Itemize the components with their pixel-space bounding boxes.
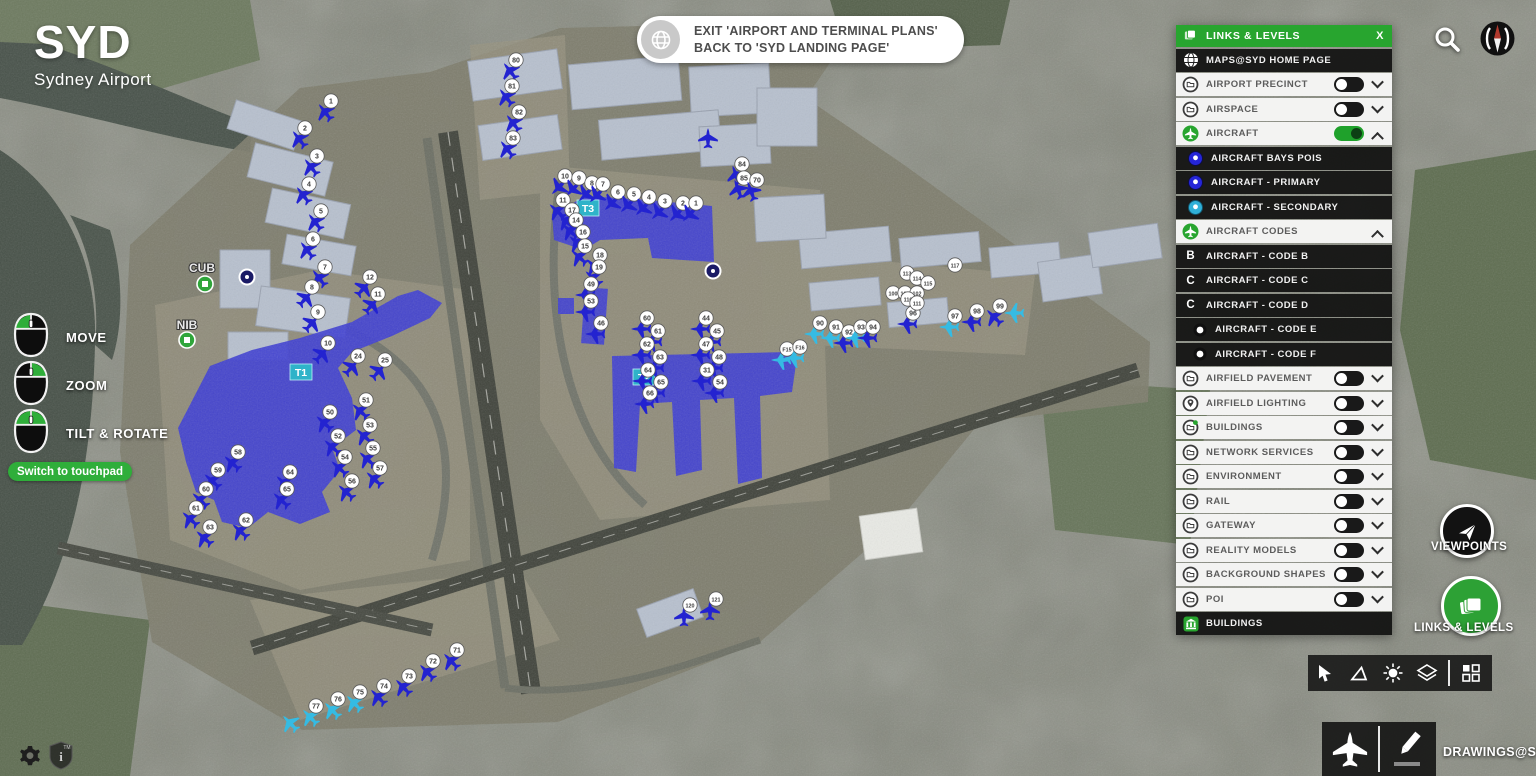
- bay-marker-number: 85: [740, 176, 748, 183]
- folder-icon: [1182, 370, 1199, 387]
- sun-icon[interactable]: [1376, 655, 1410, 691]
- svg-text:i: i: [59, 749, 63, 764]
- settings-gear-icon[interactable]: [16, 742, 44, 775]
- terminal-label-t1: T1: [290, 364, 312, 380]
- folder-icon: [1182, 566, 1199, 583]
- panel-row-label: AIRCRAFT - CODE B: [1206, 251, 1386, 262]
- poi-circle-nib: [179, 332, 195, 348]
- bay-marker-number: 3: [315, 154, 319, 161]
- bay-marker-number: 97: [951, 314, 959, 321]
- plane-green-icon: [1182, 125, 1199, 142]
- bay-marker-number: 15: [581, 244, 589, 251]
- chevron-down-icon[interactable]: [1371, 443, 1384, 456]
- pin-icon: [1182, 395, 1199, 412]
- bay-marker-number: 14: [572, 218, 580, 225]
- panel-row-label: NETWORK SERVICES: [1206, 447, 1327, 458]
- exit-line2: BACK TO 'SYD LANDING PAGE': [694, 40, 938, 57]
- panel-row-aircraft-primary[interactable]: AIRCRAFT - PRIMARY: [1176, 171, 1392, 194]
- dot-cyan-icon: [1187, 199, 1204, 216]
- bay-marker-number: 9: [577, 176, 581, 183]
- panel-row-label: AIRFIELD LIGHTING: [1206, 398, 1327, 409]
- layers-box-icon[interactable]: [1410, 655, 1444, 691]
- toggle-aircraft[interactable]: [1334, 126, 1364, 141]
- drawings-syd-label: DRAWINGS@SYD: [1443, 745, 1536, 759]
- toggle-gateway[interactable]: [1334, 518, 1364, 533]
- bay-marker-number: 75: [356, 690, 364, 697]
- plane-green-icon: [1182, 223, 1199, 240]
- chevron-down-icon[interactable]: [1371, 566, 1384, 579]
- chevron-down-icon[interactable]: [1371, 76, 1384, 89]
- bay-marker-number: 52: [334, 434, 342, 441]
- toggle-network-services[interactable]: [1334, 445, 1364, 460]
- globe-icon: [641, 20, 680, 59]
- bay-marker-number: 80: [512, 58, 520, 65]
- app-stage: CUB NIB T1 T2 T3 12345678910121124255051…: [0, 0, 1536, 776]
- links-levels-panel: LINKS & LEVELS X MAPS@SYD HOME PAGEAIRPO…: [1176, 25, 1392, 635]
- tilt-rotate-label: TILT & ROTATE: [66, 426, 168, 441]
- bay-marker-number: 53: [366, 423, 374, 430]
- toggle-airfield-lighting[interactable]: [1334, 396, 1364, 411]
- toggle-environment[interactable]: [1334, 469, 1364, 484]
- bay-marker-number: 3: [663, 199, 667, 206]
- panel-row-aircraft[interactable]: AIRCRAFT: [1176, 122, 1392, 145]
- panel-row-aircraft-code-f[interactable]: AIRCRAFT - CODE F: [1176, 343, 1392, 366]
- toolbar-separator: [1448, 660, 1450, 686]
- chevron-up-icon[interactable]: [1371, 230, 1384, 243]
- bay-marker-number: 11: [559, 198, 567, 205]
- panel-row-aircraft-code-c[interactable]: CAIRCRAFT - CODE C: [1176, 269, 1392, 292]
- toggle-poi[interactable]: [1334, 592, 1364, 607]
- bay-marker-number: 1: [329, 99, 333, 106]
- airplane-tool-icon[interactable]: [1322, 722, 1378, 776]
- folder-greendot-icon: [1182, 419, 1199, 436]
- folder-icon: [1182, 444, 1199, 461]
- panel-row-buildings[interactable]: BUILDINGS: [1176, 416, 1392, 439]
- panel-row-label: AIRCRAFT - CODE F: [1215, 349, 1386, 360]
- bay-marker-number: 60: [202, 487, 210, 494]
- panel-row-label: POI: [1206, 594, 1327, 605]
- globe-icon: [1182, 52, 1199, 69]
- bay-marker-number: 82: [515, 110, 523, 117]
- bay-marker-number: 84: [738, 162, 746, 169]
- panel-row-label: BACKGROUND SHAPES: [1206, 569, 1327, 580]
- bay-marker-number: 16: [579, 230, 587, 237]
- bay-marker-number: 83: [509, 136, 517, 143]
- compass-icon[interactable]: [1479, 20, 1516, 62]
- bay-marker-number: 47: [702, 342, 710, 349]
- search-icon[interactable]: [1432, 24, 1462, 59]
- panel-row-aircraft-code-b[interactable]: BAIRCRAFT - CODE B: [1176, 245, 1392, 268]
- bay-marker-number: 64: [644, 368, 652, 375]
- panel-row-label: RAIL: [1206, 496, 1327, 507]
- bay-marker-number: 5: [319, 209, 323, 216]
- syd-logo: SYD Sydney Airport: [34, 18, 152, 90]
- bay-marker-number: 44: [702, 316, 710, 323]
- poi-label-cub: CUB: [189, 261, 215, 275]
- poi-circle-cub: [197, 276, 213, 292]
- panel-row-label: AIRCRAFT - CODE C: [1206, 275, 1386, 286]
- bay-marker-number: 65: [657, 380, 665, 387]
- bay-marker-number: 31: [703, 368, 711, 375]
- bay-marker-number: 117: [951, 264, 960, 270]
- bay-marker-number: 93: [857, 325, 865, 332]
- chevron-down-icon[interactable]: [1371, 590, 1384, 603]
- stacked-layers-icon: [1457, 592, 1485, 620]
- bay-marker-number: 76: [334, 697, 342, 704]
- folder-icon: [1182, 493, 1199, 510]
- bay-marker-number: 63: [206, 525, 214, 532]
- bay-marker-number: 61: [654, 329, 662, 336]
- code-letter-icon: C: [1182, 275, 1199, 287]
- dot-blue-icon: [1187, 150, 1204, 167]
- bay-marker-number: 4: [647, 195, 651, 202]
- layers-icon: [1184, 28, 1198, 45]
- plane-mini-icon: [1191, 346, 1208, 363]
- chevron-down-icon[interactable]: [1371, 468, 1384, 481]
- pencil-tool-icon[interactable]: [1380, 722, 1436, 776]
- bay-marker-number: 100: [889, 292, 898, 298]
- bay-marker-number: 6: [616, 190, 620, 197]
- bay-marker-number: 59: [214, 468, 222, 475]
- chevron-down-icon[interactable]: [1371, 370, 1384, 383]
- panel-row-label: AIRCRAFT - CODE D: [1206, 300, 1386, 311]
- panel-row-aircraft-codes[interactable]: AIRCRAFT CODES: [1176, 220, 1392, 243]
- bay-marker-number: 45: [713, 329, 721, 336]
- switch-to-touchpad-button[interactable]: Switch to touchpad: [8, 462, 132, 481]
- bay-marker-number: 11: [374, 292, 382, 299]
- chevron-down-icon[interactable]: [1371, 394, 1384, 407]
- plane-mini-icon: [1191, 321, 1208, 338]
- bay-marker-number: 7: [323, 265, 327, 272]
- panel-row-label: ENVIRONMENT: [1206, 471, 1327, 482]
- panel-row-label: AIRCRAFT - SECONDARY: [1211, 202, 1386, 213]
- toggle-reality-models[interactable]: [1334, 543, 1364, 558]
- folder-icon: [1182, 76, 1199, 93]
- map-toolbar: [1308, 655, 1492, 691]
- dot-blue-icon: [1187, 174, 1204, 191]
- bay-marker-number: 64: [286, 470, 294, 477]
- folder-icon: [1182, 517, 1199, 534]
- bay-marker-number: 66: [646, 391, 654, 398]
- panel-row-label: MAPS@SYD HOME PAGE: [1206, 55, 1386, 66]
- panel-row-label: BUILDINGS: [1206, 618, 1386, 629]
- panel-row-label: GATEWAY: [1206, 520, 1327, 531]
- panel-row-aircraft-bays-pois[interactable]: AIRCRAFT BAYS POIS: [1176, 147, 1392, 170]
- bay-marker-number: 54: [341, 455, 349, 462]
- panel-row-gateway[interactable]: GATEWAY: [1176, 514, 1392, 537]
- bay-marker-number: 9: [316, 310, 320, 317]
- bay-marker-number: 55: [369, 446, 377, 453]
- paper-plane-icon: [1455, 519, 1479, 543]
- bay-marker-number: 111: [913, 302, 921, 308]
- svg-text:T1: T1: [295, 367, 307, 379]
- exit-banner-button[interactable]: EXIT 'AIRPORT AND TERMINAL PLANS' BACK T…: [637, 16, 964, 63]
- bay-marker-number: F15: [782, 348, 791, 354]
- panel-row-label: AIRCRAFT CODES: [1206, 226, 1364, 237]
- mouse-control-move: MOVE: [10, 312, 107, 363]
- panel-row-environment[interactable]: ENVIRONMENT: [1176, 465, 1392, 488]
- folder-icon: [1182, 468, 1199, 485]
- panel-row-aircraft-code-d[interactable]: CAIRCRAFT - CODE D: [1176, 294, 1392, 317]
- select-arrow-icon[interactable]: [1308, 655, 1342, 691]
- toggle-airspace[interactable]: [1334, 102, 1364, 117]
- bay-marker-number: 10: [324, 341, 332, 348]
- bay-marker-number: 94: [869, 325, 877, 332]
- panel-title: LINKS & LEVELS: [1206, 30, 1300, 42]
- bay-marker-number: 60: [643, 316, 651, 323]
- bay-marker-number: 53: [587, 299, 595, 306]
- bay-marker-number: F16: [795, 346, 804, 352]
- panel-row-label: AIRCRAFT - CODE E: [1215, 324, 1386, 335]
- toggle-airport-precinct[interactable]: [1334, 77, 1364, 92]
- bay-marker-number: 25: [381, 358, 389, 365]
- toggle-buildings[interactable]: [1334, 420, 1364, 435]
- folder-icon: [1182, 101, 1199, 118]
- bay-marker-number: 51: [362, 398, 370, 405]
- bay-marker-number: 81: [508, 84, 516, 91]
- panel-row-airfield-pavement[interactable]: AIRFIELD PAVEMENT: [1176, 367, 1392, 390]
- panel-row-airspace[interactable]: AIRSPACE: [1176, 98, 1392, 121]
- bay-marker-number: 71: [453, 648, 461, 655]
- bay-marker-number: 2: [303, 126, 307, 133]
- panel-row-network-services[interactable]: NETWORK SERVICES: [1176, 441, 1392, 464]
- bay-marker-number: 70: [753, 178, 761, 185]
- panel-row-aircraft-secondary[interactable]: AIRCRAFT - SECONDARY: [1176, 196, 1392, 219]
- panel-header: LINKS & LEVELS X: [1176, 25, 1392, 47]
- bay-marker-number: 114: [913, 277, 922, 283]
- bay-marker-number: 73: [405, 674, 413, 681]
- bay-marker-number: 91: [832, 325, 840, 332]
- bay-marker-number: 65: [283, 487, 291, 494]
- chevron-down-icon[interactable]: [1371, 419, 1384, 432]
- bay-marker-number: 74: [380, 684, 388, 691]
- bay-marker-number: 121: [712, 598, 721, 604]
- terminal-label-t3: T3: [577, 200, 599, 216]
- bay-marker-number: 72: [429, 659, 437, 666]
- bay-marker-number: 61: [192, 506, 200, 513]
- bay-marker-number: 4: [307, 182, 311, 189]
- chevron-down-icon[interactable]: [1371, 100, 1384, 113]
- panel-row-maps-syd-home-page[interactable]: MAPS@SYD HOME PAGE: [1176, 49, 1392, 72]
- toggle-rail[interactable]: [1334, 494, 1364, 509]
- bay-marker-number: 12: [366, 275, 374, 282]
- bay-marker-number: 63: [656, 355, 664, 362]
- mouse-control-zoom: ZOOM: [10, 360, 107, 411]
- bay-marker-number: 49: [587, 282, 595, 289]
- panel-row-label: AIRCRAFT BAYS POIS: [1211, 153, 1386, 164]
- panel-row-label: AIRPORT PRECINCT: [1206, 79, 1327, 90]
- chevron-down-icon[interactable]: [1371, 541, 1384, 554]
- mouse-tilt-rotate-icon: [10, 408, 52, 459]
- zoom-label: ZOOM: [66, 378, 107, 393]
- bay-marker-number: 19: [595, 265, 603, 272]
- panel-row-airport-precinct[interactable]: AIRPORT PRECINCT: [1176, 73, 1392, 96]
- bay-marker-number: 6: [311, 237, 315, 244]
- panel-row-label: REALITY MODELS: [1206, 545, 1327, 556]
- bay-marker-number: 77: [312, 704, 320, 711]
- toggle-airfield-pavement[interactable]: [1334, 371, 1364, 386]
- bay-marker-number: 46: [597, 321, 605, 328]
- logo-title: SYD: [34, 18, 152, 66]
- mouse-control-tilt: TILT & ROTATE: [10, 408, 168, 459]
- panel-row-label: AIRSPACE: [1206, 104, 1327, 115]
- bay-marker-number: 99: [996, 304, 1004, 311]
- bay-marker-number: 56: [348, 479, 356, 486]
- mouse-move-icon: [10, 312, 52, 363]
- info-shield-icon[interactable]: i TM: [48, 740, 74, 775]
- bay-marker-number: 48: [715, 355, 723, 362]
- bay-marker-number: 50: [326, 410, 334, 417]
- panel-row-label: BUILDINGS: [1206, 422, 1327, 433]
- folder-icon: [1182, 542, 1199, 559]
- viewpoints-label: VIEWPOINTS: [1431, 541, 1507, 553]
- move-label: MOVE: [66, 330, 107, 345]
- chevron-down-icon[interactable]: [1371, 517, 1384, 530]
- panel-row-airfield-lighting[interactable]: AIRFIELD LIGHTING: [1176, 392, 1392, 415]
- bay-marker-number: 18: [596, 253, 604, 260]
- bay-marker-number: 57: [376, 466, 384, 473]
- bay-marker-number: 54: [716, 380, 724, 387]
- bay-marker-number: 62: [242, 518, 250, 525]
- bay-marker-number: 5: [632, 192, 636, 199]
- bay-marker-number: 8: [310, 285, 314, 292]
- bay-marker-number: 7: [601, 182, 605, 189]
- bay-marker-number: 58: [234, 450, 242, 457]
- draw-toolbar: [1322, 722, 1436, 776]
- bay-marker-number: 98: [973, 309, 981, 316]
- mouse-zoom-icon: [10, 360, 52, 411]
- panel-row-label: AIRFIELD PAVEMENT: [1206, 373, 1327, 384]
- panel-row-poi[interactable]: POI: [1176, 588, 1392, 611]
- bay-marker-number: 24: [354, 354, 362, 361]
- folder-icon: [1182, 591, 1199, 608]
- bay-marker-number: 96: [909, 311, 917, 318]
- grid-icon[interactable]: [1454, 655, 1488, 691]
- building-green-icon: [1182, 615, 1199, 632]
- bay-marker-number: 120: [686, 604, 695, 610]
- panel-row-label: AIRCRAFT - PRIMARY: [1211, 177, 1386, 188]
- svg-text:T3: T3: [582, 203, 594, 215]
- bay-marker-number: 115: [924, 282, 933, 288]
- links-levels-label: LINKS & LEVELS: [1414, 622, 1514, 634]
- measure-angle-icon[interactable]: [1342, 655, 1376, 691]
- code-letter-icon: B: [1182, 250, 1199, 262]
- panel-row-buildings[interactable]: BUILDINGS: [1176, 612, 1392, 635]
- bay-marker-number: 1: [694, 201, 698, 208]
- bay-marker-number: 92: [845, 330, 853, 337]
- exit-line1: EXIT 'AIRPORT AND TERMINAL PLANS': [694, 23, 938, 40]
- poi-label-nib: NIB: [177, 318, 198, 332]
- panel-row-rail[interactable]: RAIL: [1176, 490, 1392, 513]
- bay-marker-number: 10: [561, 174, 569, 181]
- logo-subtitle: Sydney Airport: [34, 70, 152, 90]
- bay-marker-number: 62: [643, 342, 651, 349]
- bay-marker-number: 90: [816, 321, 824, 328]
- panel-row-background-shapes[interactable]: BACKGROUND SHAPES: [1176, 563, 1392, 586]
- svg-text:TM: TM: [63, 745, 70, 751]
- code-letter-icon: C: [1182, 299, 1199, 311]
- panel-row-aircraft-code-e[interactable]: AIRCRAFT - CODE E: [1176, 318, 1392, 341]
- toggle-background-shapes[interactable]: [1334, 567, 1364, 582]
- chevron-down-icon[interactable]: [1371, 492, 1384, 505]
- panel-row-label: AIRCRAFT: [1206, 128, 1327, 139]
- panel-row-reality-models[interactable]: REALITY MODELS: [1176, 539, 1392, 562]
- chevron-up-icon[interactable]: [1371, 132, 1384, 145]
- close-icon[interactable]: X: [1376, 30, 1384, 42]
